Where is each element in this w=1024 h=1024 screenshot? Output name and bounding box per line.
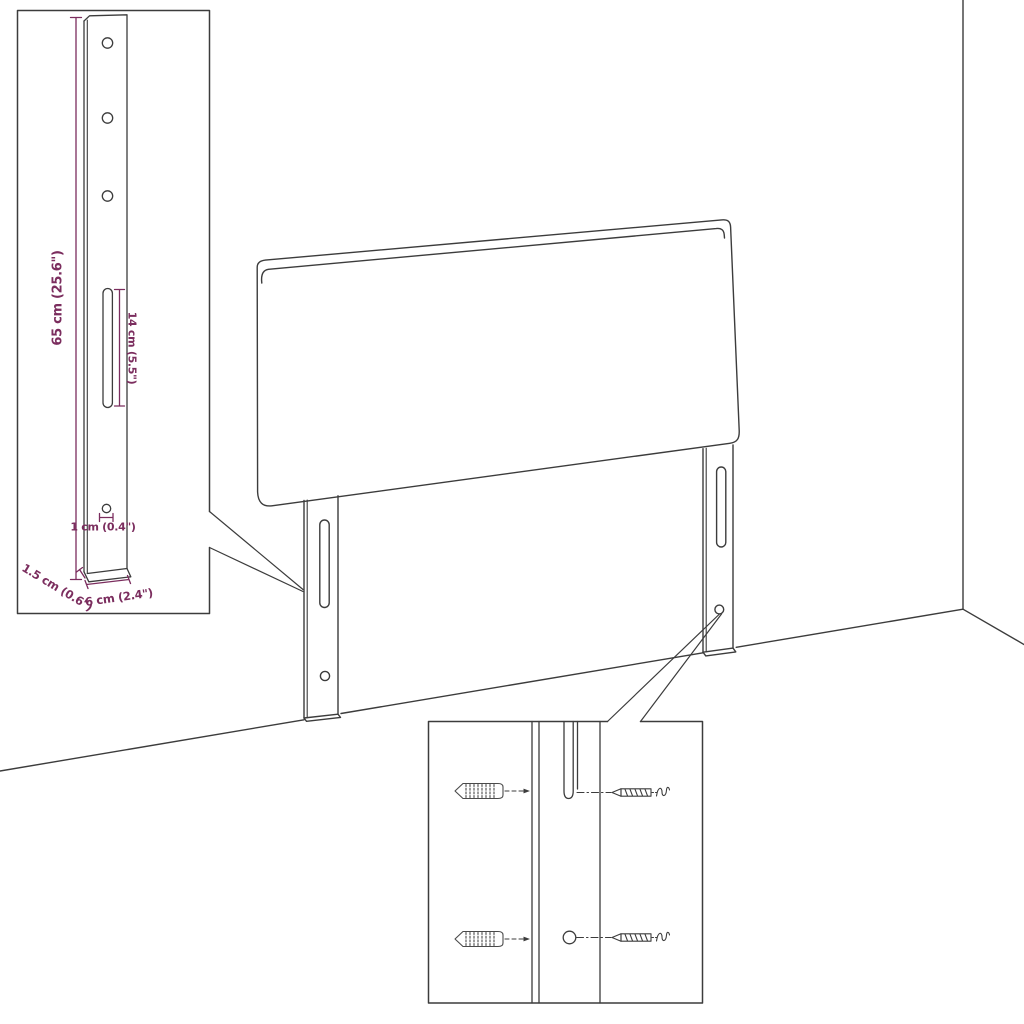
plug-leader-upper bbox=[505, 789, 530, 794]
left-leg-hole bbox=[320, 671, 329, 680]
headboard-top-lip-line bbox=[262, 228, 725, 283]
dim-line-14cm bbox=[115, 290, 125, 407]
headboard-outline bbox=[257, 220, 739, 506]
dimension-lines bbox=[71, 18, 131, 589]
screw-icon bbox=[577, 787, 670, 796]
bracket-hole-mid bbox=[102, 113, 112, 123]
floor-line-right bbox=[963, 609, 1024, 644]
callout-lines-bracket bbox=[210, 512, 304, 592]
detail-leg-strip bbox=[532, 722, 600, 1004]
dim-label-hole-diameter: 1 cm (0.4") bbox=[48, 522, 158, 533]
left-leg bbox=[304, 496, 341, 722]
callout-lines-mounting bbox=[608, 614, 722, 722]
bracket-hole-low bbox=[102, 191, 112, 201]
dim-label-bracket-height: 65 cm (25.6") bbox=[52, 233, 65, 363]
detail-hole bbox=[563, 931, 576, 944]
wall-plug-icon bbox=[455, 932, 503, 947]
screw-thread-coil bbox=[657, 787, 670, 796]
floor-line-left bbox=[0, 609, 963, 771]
inset-mounting-border bbox=[429, 722, 703, 1004]
inset-mounting-detail bbox=[429, 614, 722, 1003]
wall-plug-icon bbox=[455, 784, 503, 799]
plug-leader-lower bbox=[505, 937, 530, 942]
right-leg-slot bbox=[717, 467, 726, 547]
room-corner-lines bbox=[0, 0, 1024, 771]
diagram-canvas: 65 cm (25.6") 14 cm (5.5") 1 cm (0.4") 1… bbox=[0, 0, 1024, 1024]
bracket-small-hole bbox=[102, 504, 110, 512]
right-leg-hole bbox=[715, 605, 724, 614]
dim-label-slot-length: 14 cm (5.5") bbox=[127, 293, 138, 403]
bracket-hole-top bbox=[102, 38, 112, 48]
detail-slot bbox=[564, 722, 578, 799]
bracket-slot bbox=[103, 289, 112, 408]
line-art bbox=[0, 0, 1024, 1024]
headboard-panel bbox=[257, 220, 739, 506]
screw-icon bbox=[577, 932, 670, 941]
right-leg bbox=[703, 445, 736, 656]
left-leg-slot bbox=[320, 520, 329, 608]
dim-line-65cm bbox=[71, 18, 82, 580]
screw-thread-coil bbox=[657, 932, 670, 941]
